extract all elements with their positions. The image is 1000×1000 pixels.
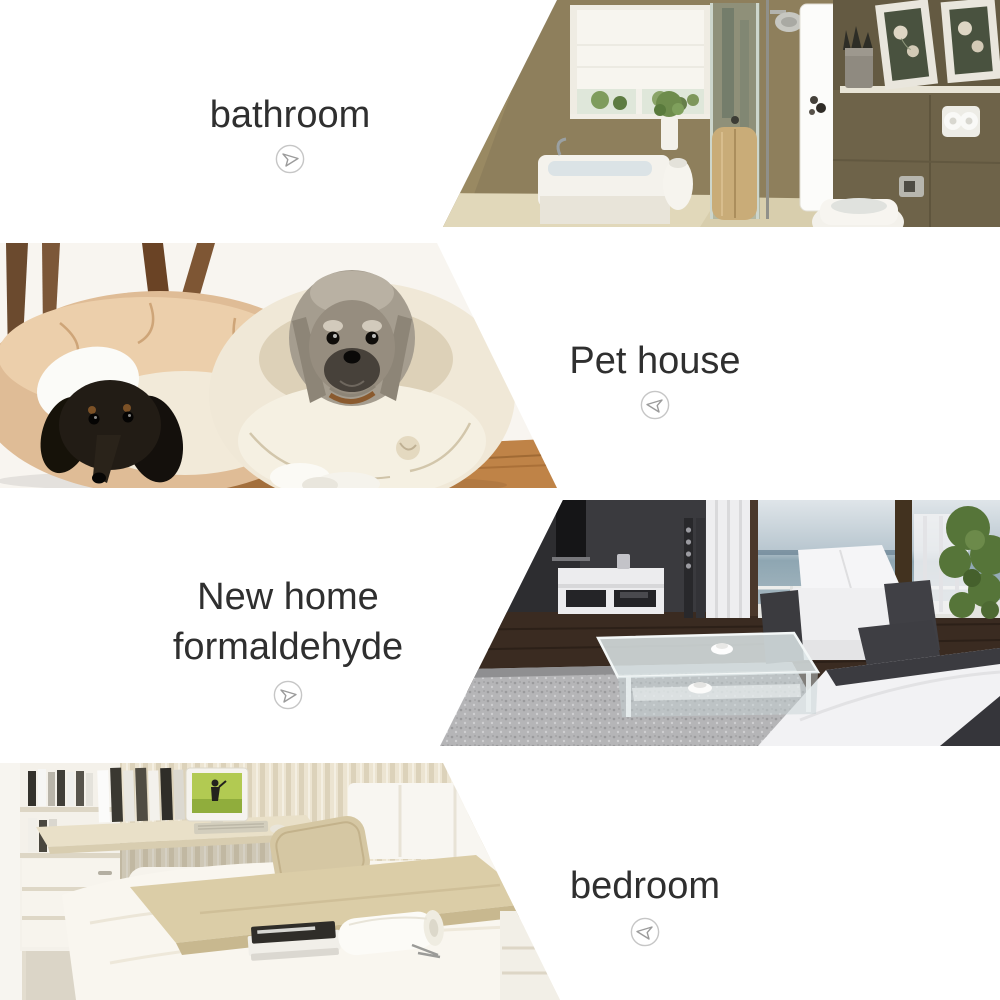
section-bedroom: bedroom <box>0 763 1000 1000</box>
product-collage: bathroom <box>0 0 1000 1000</box>
bathroom-label-block: bathroom <box>120 92 460 179</box>
section-label: bathroom <box>120 92 460 138</box>
section-pet-house: Pet house <box>0 243 1000 488</box>
pet-house-label-block: Pet house <box>485 338 825 425</box>
new-home-label-block: New home formaldehyde <box>118 572 458 715</box>
section-label-line2: formaldehyde <box>118 622 458 672</box>
section-new-home-formaldehyde: New home formaldehyde <box>0 500 1000 746</box>
bedroom-label-block: bedroom <box>475 863 815 952</box>
arrow-left-icon <box>640 390 670 420</box>
arrow-left-icon <box>630 917 660 947</box>
section-label: Pet house <box>485 338 825 384</box>
section-bathroom: bathroom <box>0 0 1000 227</box>
arrow-right-icon <box>273 680 303 710</box>
section-label-line1: New home <box>118 572 458 622</box>
section-label: bedroom <box>475 863 815 909</box>
arrow-right-icon <box>275 144 305 174</box>
